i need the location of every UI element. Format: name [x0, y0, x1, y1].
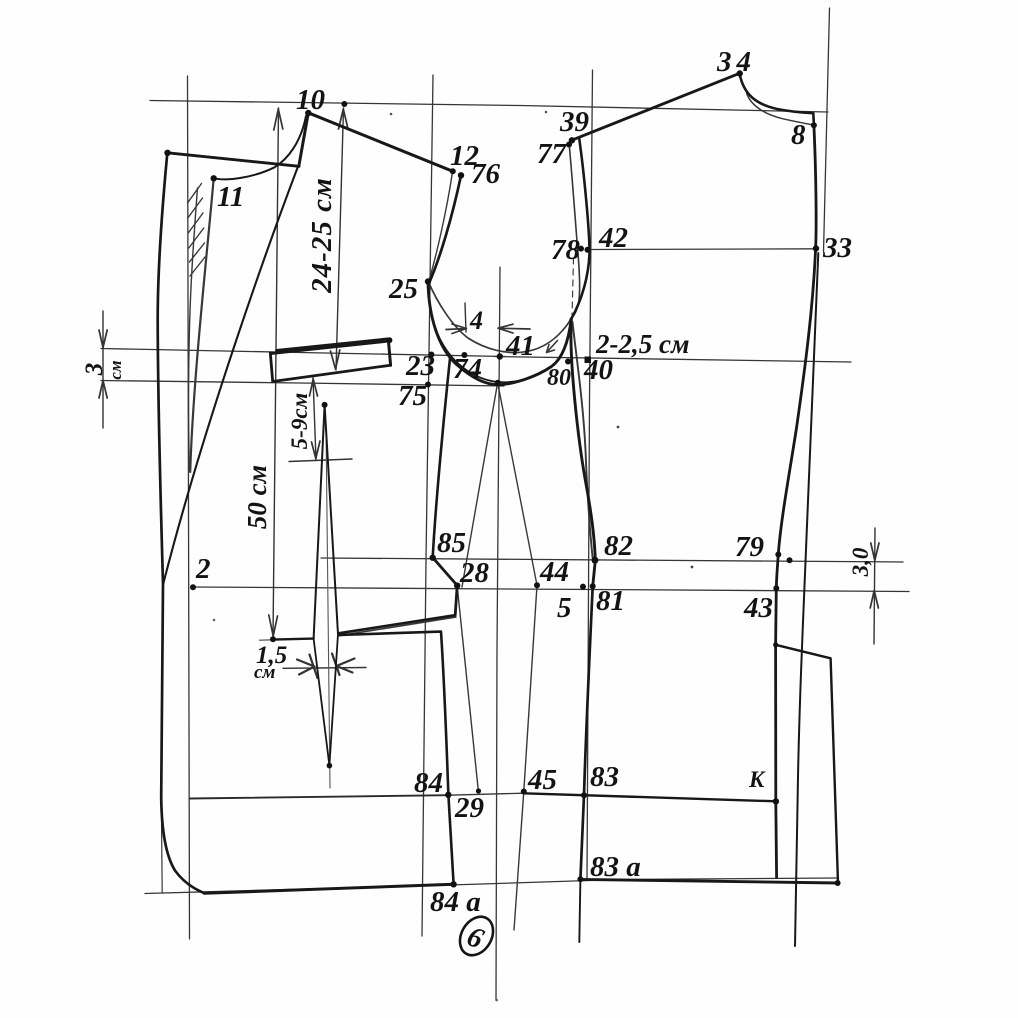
svg-text:74: 74 — [453, 353, 482, 385]
svg-text:75: 75 — [398, 380, 427, 412]
svg-text:83 а: 83 а — [590, 851, 641, 883]
svg-text:77: 77 — [537, 138, 568, 170]
svg-text:2: 2 — [195, 553, 211, 585]
svg-text:83: 83 — [590, 761, 619, 793]
svg-text:81: 81 — [596, 585, 625, 617]
svg-text:82: 82 — [604, 530, 633, 562]
svg-text:11: 11 — [217, 181, 244, 213]
svg-text:8: 8 — [791, 119, 806, 151]
svg-text:25: 25 — [388, 273, 418, 305]
svg-text:K: K — [748, 767, 766, 792]
svg-text:43: 43 — [743, 592, 773, 624]
svg-text:см: см — [254, 662, 275, 683]
svg-text:33: 33 — [822, 232, 852, 264]
svg-text:4: 4 — [469, 306, 483, 335]
svg-text:80: 80 — [547, 365, 571, 391]
svg-text:29: 29 — [454, 792, 484, 824]
svg-text:10: 10 — [296, 84, 325, 116]
svg-text:5-9см: 5-9см — [287, 393, 312, 450]
svg-text:42: 42 — [598, 222, 628, 254]
svg-text:см: см — [106, 360, 125, 380]
svg-text:5: 5 — [557, 592, 572, 624]
svg-text:79: 79 — [735, 531, 764, 563]
svg-text:76: 76 — [471, 158, 501, 190]
svg-text:44: 44 — [539, 556, 569, 588]
svg-text:84 а: 84 а — [430, 886, 481, 918]
svg-text:24-25 см: 24-25 см — [306, 177, 338, 294]
svg-text:28: 28 — [459, 557, 490, 589]
svg-text:3,0: 3,0 — [848, 547, 873, 577]
svg-text:34: 34 — [716, 46, 756, 78]
svg-text:23: 23 — [405, 350, 435, 382]
svg-text:85: 85 — [437, 527, 466, 559]
svg-text:39: 39 — [559, 106, 589, 138]
svg-text:2-2,5 см: 2-2,5 см — [595, 329, 689, 359]
svg-text:50 см: 50 см — [242, 465, 272, 529]
svg-text:78: 78 — [551, 234, 581, 266]
svg-text:45: 45 — [527, 764, 557, 796]
svg-text:84: 84 — [414, 767, 443, 799]
svg-text:41: 41 — [505, 330, 535, 362]
svg-text:3: 3 — [81, 363, 108, 377]
